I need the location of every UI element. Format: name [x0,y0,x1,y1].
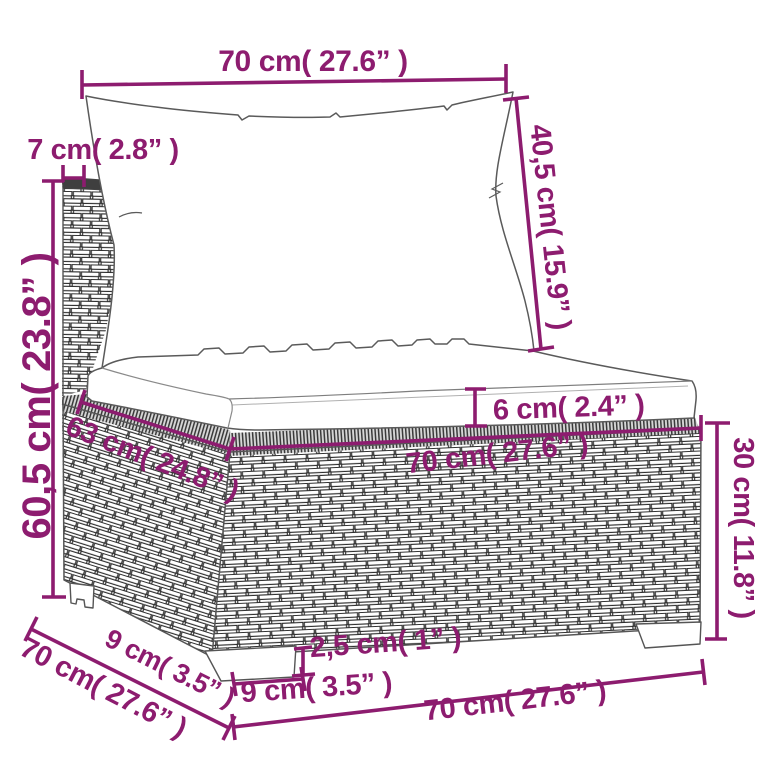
svg-text:70 cm( 27.6” ): 70 cm( 27.6” ) [422,675,607,728]
svg-text:30 cm( 11.8” ): 30 cm( 11.8” ) [727,437,759,618]
svg-text:40,5 cm( 15.9” ): 40,5 cm( 15.9” ) [523,123,576,332]
svg-text:60,5 cm( 23.8” ): 60,5 cm( 23.8” ) [15,252,59,539]
svg-text:70 cm( 27.6” ): 70 cm( 27.6” ) [218,45,408,78]
svg-text:7 cm( 2.8” ): 7 cm( 2.8” ) [27,134,179,166]
svg-text:6 cm( 2.4” ): 6 cm( 2.4” ) [492,389,645,426]
